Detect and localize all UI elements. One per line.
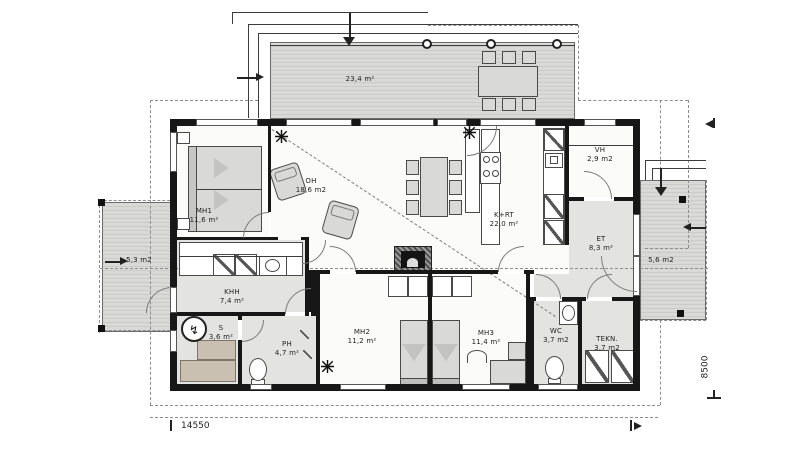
eaves-line xyxy=(150,100,258,101)
wardrobe xyxy=(388,276,408,297)
room-area-terrace-top: 23,4 m² xyxy=(346,75,375,84)
room-area-s: 3,6 m² xyxy=(209,333,233,342)
window-mh1-north xyxy=(196,119,258,126)
desk xyxy=(490,360,526,384)
chair-icon xyxy=(502,51,516,64)
window-mh3-south xyxy=(462,384,510,390)
stove-burner xyxy=(483,170,490,177)
stove-burner xyxy=(483,156,490,163)
wall-s-ph xyxy=(238,340,242,391)
dimension-tick xyxy=(713,390,715,398)
roof-edge-line xyxy=(645,160,646,180)
room-area-terrace-right: 5,6 m2 xyxy=(648,256,674,265)
roof-slope-arrow-icon xyxy=(689,227,706,229)
room-name-wc: WC xyxy=(543,327,569,336)
roof-slope-arrowhead-icon xyxy=(655,187,667,196)
roof-slope-arrow-icon xyxy=(660,168,662,189)
wardrobe xyxy=(408,276,428,297)
eaves-line xyxy=(150,100,151,405)
room-name-mh1: MH1 xyxy=(190,207,219,216)
room-label-mh2: MH211,2 m² xyxy=(348,328,377,345)
chair-icon xyxy=(522,51,536,64)
room-area-et: 8,3 m² xyxy=(589,244,613,253)
room-label-krt: K+RT22,0 m² xyxy=(490,211,519,228)
chair-icon xyxy=(449,200,462,215)
room-label-mh3: MH311,4 m² xyxy=(472,329,501,346)
terrace-post xyxy=(679,196,686,203)
room-area-mh2: 11,2 m² xyxy=(348,337,377,346)
roof-edge-line xyxy=(232,12,428,13)
room-label-ph: PH4,7 m² xyxy=(275,340,299,357)
eaves-line xyxy=(578,25,579,100)
dining-table-icon xyxy=(420,157,448,217)
chair-icon xyxy=(449,180,462,195)
room-name-ph: PH xyxy=(275,340,299,349)
room-area-krt: 22,0 m² xyxy=(490,220,519,229)
room-name-khh: KHH xyxy=(220,288,244,297)
dimension-arrowhead-icon xyxy=(705,120,713,128)
terrace-post xyxy=(486,39,496,49)
roof-edge-line xyxy=(652,168,653,180)
room-area-khh: 7,4 m² xyxy=(220,297,244,306)
stove-burner xyxy=(492,156,499,163)
roof-slope-arrowhead-icon xyxy=(683,223,691,231)
eaves-line xyxy=(99,200,100,333)
room-name-mh2: MH2 xyxy=(348,328,377,337)
sink-basin xyxy=(562,305,575,321)
wall-oh-bedrooms xyxy=(356,270,498,274)
eaves-line xyxy=(660,320,661,405)
room-name-tekn: TEKN. xyxy=(594,335,620,344)
room-name-et: ET xyxy=(589,235,613,244)
bed-fold xyxy=(402,344,426,361)
plant-icon xyxy=(275,130,288,143)
window-vh-north xyxy=(584,119,616,126)
room-label-s: S3,6 m² xyxy=(209,324,233,341)
roof-edge-line xyxy=(645,160,706,161)
room-area-wc: 3,7 m2 xyxy=(543,336,569,345)
sauna-bench xyxy=(180,360,236,382)
chair-icon xyxy=(449,160,462,175)
dimension-width-label: 14550 xyxy=(181,421,210,431)
sauna-bench xyxy=(197,340,236,360)
roof-edge-line xyxy=(248,24,578,25)
desk-chair-icon xyxy=(467,350,487,363)
room-area-mh3: 11,4 m² xyxy=(472,338,501,347)
room-label-tekn: TEKN.3,7 m2 xyxy=(594,335,620,352)
chair-icon xyxy=(522,98,536,111)
chair-icon xyxy=(406,160,419,175)
room-label-vh: VH2,9 m2 xyxy=(587,146,613,163)
terrace-post xyxy=(552,39,562,49)
eaves-line xyxy=(578,100,688,101)
nightstand xyxy=(177,218,190,230)
room-label-terrace-left: 5,3 m2 xyxy=(126,256,152,265)
window-oh-north-2 xyxy=(360,119,434,126)
electrical-unit-icon xyxy=(611,350,634,383)
dimension-tick xyxy=(713,118,715,128)
water-heater-icon xyxy=(585,350,609,383)
desk xyxy=(508,342,526,360)
plot-boundary-line xyxy=(150,417,658,418)
bed-centerline xyxy=(197,189,262,190)
terrace-table-icon xyxy=(478,66,538,97)
room-area-terrace-left: 5,3 m2 xyxy=(126,256,152,265)
roof-slope-arrow-icon xyxy=(349,13,351,39)
roof-edge-line xyxy=(258,33,578,34)
wall-wc-tekn xyxy=(578,301,582,391)
room-label-oh: OH18,6 m2 xyxy=(296,177,326,194)
roof-slope-arrowhead-icon xyxy=(343,37,355,46)
bed-fold xyxy=(214,158,229,178)
eaves-line xyxy=(428,25,578,26)
plant-icon xyxy=(321,360,334,373)
roof-edge-line xyxy=(232,12,233,24)
wall-vh-et xyxy=(614,197,633,201)
wardrobe xyxy=(432,276,452,297)
washer-icon xyxy=(213,254,235,276)
room-label-terrace-right: 5,6 m2 xyxy=(648,256,674,265)
toilet-icon xyxy=(545,356,564,380)
room-label-et: ET8,3 m² xyxy=(589,235,613,252)
dimension-depth-label: 8500 xyxy=(700,356,710,379)
eaves-line xyxy=(640,320,706,321)
chair-icon xyxy=(502,98,516,111)
eaves-line xyxy=(150,405,660,406)
fireplace-arch xyxy=(407,258,418,267)
floor-plan-canvas: { "rooms": { "mh1": {"name": "MH1", "are… xyxy=(0,0,800,450)
toilet-icon xyxy=(249,358,267,381)
window-oh-north-1 xyxy=(286,119,352,126)
room-name-s: S xyxy=(209,324,233,333)
dimension-tick xyxy=(630,420,632,431)
freezer-icon xyxy=(544,220,564,245)
chair-icon xyxy=(482,51,496,64)
chair-icon xyxy=(406,200,419,215)
room-label-khh: KHH7,4 m² xyxy=(220,288,244,305)
terrace-post xyxy=(677,310,684,317)
kitchen-cabinet xyxy=(544,129,564,151)
room-area-vh: 2,9 m2 xyxy=(587,155,613,164)
wall-mh1-oh xyxy=(268,126,271,212)
room-name-krt: K+RT xyxy=(490,211,519,220)
room-area-tekn: 3,7 m2 xyxy=(594,344,620,353)
dimension-tick xyxy=(170,420,172,431)
dimension-arrowhead-icon xyxy=(634,422,642,430)
room-label-wc: WC3,7 m2 xyxy=(543,327,569,344)
eaves-line xyxy=(99,200,175,201)
stove-burner xyxy=(492,170,499,177)
wall-et-south xyxy=(562,297,586,301)
room-name-mh3: MH3 xyxy=(472,329,501,338)
wall-mh2-mh3 xyxy=(428,274,432,391)
room-label-mh1: MH111,6 m² xyxy=(190,207,219,224)
window-ph-south xyxy=(250,384,272,390)
room-area-ph: 4,7 m² xyxy=(275,349,299,358)
room-area-mh1: 11,6 m² xyxy=(190,216,219,225)
bed-fold xyxy=(434,344,458,361)
room-label-terrace-top: 23,4 m² xyxy=(346,75,375,84)
window-mh1-west xyxy=(170,132,177,172)
roof-slope-arrowhead-icon xyxy=(256,73,264,81)
window-mh2-south xyxy=(340,384,386,390)
terrace-post xyxy=(98,325,105,332)
chair-icon xyxy=(406,180,419,195)
roof-edge-line xyxy=(248,24,249,118)
terrace-post xyxy=(422,39,432,49)
room-area-oh: 18,6 m2 xyxy=(296,186,326,195)
room-name-vh: VH xyxy=(587,146,613,155)
roof-slope-arrow-icon xyxy=(237,77,258,79)
window-wc-south xyxy=(538,384,578,390)
wardrobe xyxy=(452,276,472,297)
room-name-oh: OH xyxy=(296,177,326,186)
terrace-post xyxy=(98,199,105,206)
shower-icon xyxy=(303,350,312,359)
oven-window xyxy=(550,156,558,164)
nightstand xyxy=(177,132,190,144)
eaves-line xyxy=(706,180,707,320)
